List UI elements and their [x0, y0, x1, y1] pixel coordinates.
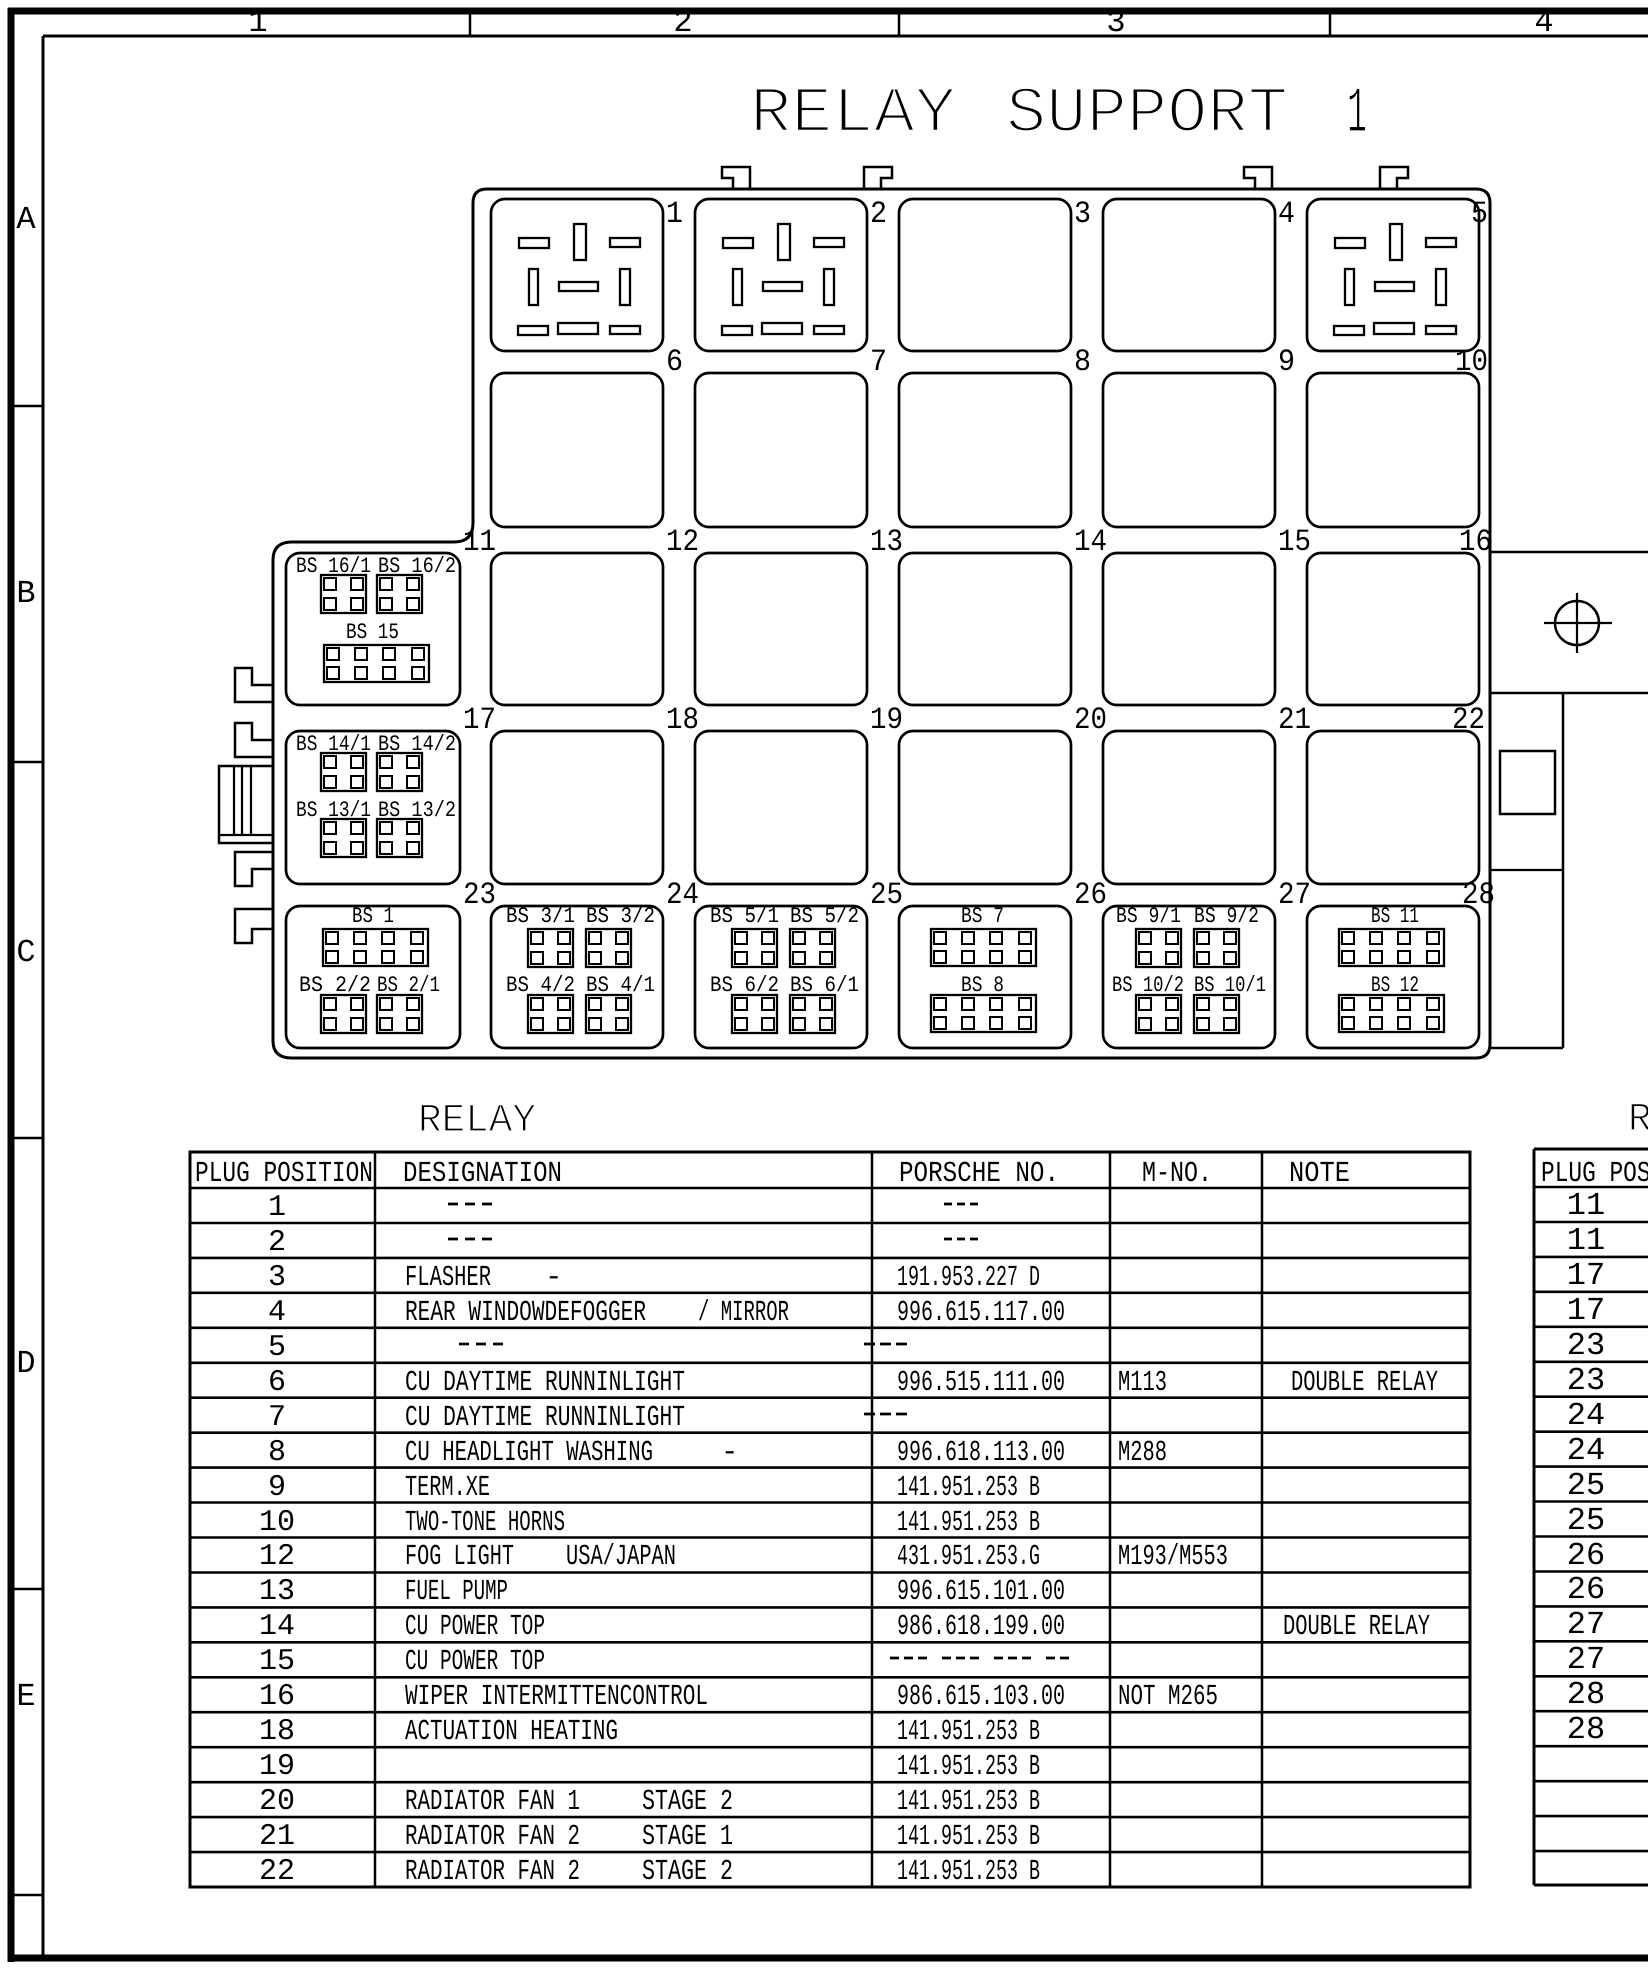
svg-text:6: 6: [268, 1366, 286, 1400]
svg-text:141.951.253 B: 141.951.253 B: [897, 1506, 1040, 1539]
svg-text:12: 12: [259, 1540, 295, 1574]
svg-text:20: 20: [1074, 703, 1107, 738]
svg-text:14: 14: [259, 1610, 295, 1644]
svg-text:26: 26: [1567, 1537, 1605, 1574]
svg-text:1: 1: [248, 4, 267, 41]
svg-text:14: 14: [1074, 525, 1107, 560]
svg-text:141.951.253 B: 141.951.253 B: [897, 1750, 1040, 1783]
svg-text:26: 26: [1074, 878, 1107, 913]
svg-text:BS 15: BS 15: [346, 620, 399, 645]
svg-text:DESIGNATION: DESIGNATION: [403, 1157, 562, 1190]
svg-text:RADIATOR FAN 2: RADIATOR FAN 2: [405, 1855, 580, 1888]
svg-text:24: 24: [666, 878, 699, 913]
svg-text:BS 9/2: BS 9/2: [1194, 904, 1259, 929]
svg-text:USA/JAPAN: USA/JAPAN: [566, 1540, 676, 1573]
svg-text:22: 22: [259, 1855, 295, 1889]
svg-text:REAR WINDOWDEFOGGER: REAR WINDOWDEFOGGER: [405, 1296, 646, 1329]
svg-text:24: 24: [1567, 1397, 1605, 1434]
svg-text:3: 3: [268, 1261, 286, 1295]
svg-text:15: 15: [259, 1645, 295, 1679]
svg-text:11: 11: [463, 525, 496, 560]
svg-text:996.615.117.00: 996.615.117.00: [897, 1296, 1065, 1329]
svg-text:431.951.253.G: 431.951.253.G: [897, 1540, 1040, 1573]
svg-text:B: B: [16, 575, 35, 612]
svg-text:SUPPORT: SUPPORT: [1006, 77, 1288, 151]
svg-text:2: 2: [268, 1226, 286, 1260]
svg-text:12: 12: [666, 525, 699, 560]
svg-text:TWO-TONE HORNS: TWO-TONE HORNS: [405, 1506, 565, 1539]
svg-text:RELAY: RELAY: [1628, 1098, 1648, 1143]
svg-text:BS 5/1: BS 5/1: [710, 904, 779, 929]
svg-text:13: 13: [870, 525, 903, 560]
svg-text:17: 17: [463, 703, 496, 738]
svg-text:4: 4: [1278, 197, 1295, 232]
svg-text:986.615.103.00: 986.615.103.00: [897, 1680, 1065, 1713]
svg-text:25: 25: [1567, 1467, 1605, 1504]
svg-text:28: 28: [1567, 1711, 1605, 1748]
svg-text:2: 2: [673, 4, 692, 41]
svg-text:23: 23: [1567, 1327, 1605, 1364]
svg-text:NOTE: NOTE: [1289, 1157, 1350, 1190]
svg-text:FOG LIGHT: FOG LIGHT: [405, 1540, 514, 1573]
svg-text:RADIATOR FAN 2: RADIATOR FAN 2: [405, 1820, 580, 1853]
svg-text:18: 18: [666, 703, 699, 738]
svg-text:13: 13: [259, 1575, 295, 1609]
svg-text:16: 16: [259, 1680, 295, 1714]
svg-text:26: 26: [1567, 1571, 1605, 1608]
svg-text:9: 9: [1278, 345, 1295, 380]
svg-text:CU DAYTIME RUNNINLIGHT: CU DAYTIME RUNNINLIGHT: [405, 1366, 685, 1399]
svg-text:RELAY: RELAY: [750, 77, 956, 151]
svg-text:BS 9/1: BS 9/1: [1116, 904, 1181, 929]
svg-text:18: 18: [259, 1715, 295, 1749]
svg-text:25: 25: [870, 878, 903, 913]
svg-text:DOUBLE RELAY: DOUBLE RELAY: [1291, 1366, 1438, 1399]
svg-text:M193/M553: M193/M553: [1118, 1540, 1228, 1573]
svg-text:21: 21: [259, 1820, 295, 1854]
svg-text:996.618.113.00: 996.618.113.00: [897, 1436, 1065, 1469]
svg-text:1: 1: [666, 197, 683, 232]
svg-text:TERM.XE: TERM.XE: [405, 1471, 490, 1504]
svg-text:996.615.101.00: 996.615.101.00: [897, 1575, 1065, 1608]
svg-text:STAGE 1: STAGE 1: [642, 1820, 733, 1853]
svg-text:FLASHER: FLASHER: [405, 1261, 491, 1294]
svg-text:19: 19: [870, 703, 903, 738]
svg-text:-: -: [721, 1436, 738, 1469]
svg-text:17: 17: [1567, 1257, 1605, 1294]
svg-text:9: 9: [268, 1471, 286, 1505]
svg-text:3: 3: [1106, 4, 1125, 41]
svg-text:28: 28: [1462, 878, 1495, 913]
svg-text:7: 7: [268, 1401, 286, 1435]
svg-text:141.951.253 B: 141.951.253 B: [897, 1855, 1040, 1888]
svg-text:RELAY: RELAY: [418, 1099, 536, 1144]
svg-text:CU POWER TOP: CU POWER TOP: [405, 1645, 545, 1678]
svg-text:1: 1: [1347, 77, 1367, 151]
svg-text:BS 5/2: BS 5/2: [790, 904, 859, 929]
svg-text:CU DAYTIME RUNNINLIGHT: CU DAYTIME RUNNINLIGHT: [405, 1401, 685, 1434]
svg-text:10: 10: [1455, 345, 1488, 380]
svg-text:BS 1: BS 1: [352, 904, 394, 929]
svg-text:191.953.227 D: 191.953.227 D: [897, 1261, 1040, 1294]
svg-text:24: 24: [1567, 1432, 1605, 1469]
svg-text:21: 21: [1278, 703, 1311, 738]
svg-text:M-NO.: M-NO.: [1142, 1157, 1212, 1190]
svg-text:CU POWER TOP: CU POWER TOP: [405, 1610, 545, 1643]
svg-text:11: 11: [1567, 1187, 1605, 1224]
svg-text:E: E: [16, 1678, 35, 1715]
svg-text:141.951.253 B: 141.951.253 B: [897, 1785, 1040, 1818]
svg-text:4: 4: [268, 1296, 286, 1330]
svg-text:3: 3: [1074, 197, 1091, 232]
svg-text:141.951.253 B: 141.951.253 B: [897, 1715, 1040, 1748]
svg-text:25: 25: [1567, 1502, 1605, 1539]
svg-text:5: 5: [1471, 197, 1488, 232]
svg-text:7: 7: [870, 345, 887, 380]
svg-text:8: 8: [268, 1436, 286, 1470]
svg-text:19: 19: [259, 1750, 295, 1784]
svg-text:27: 27: [1567, 1641, 1605, 1678]
svg-text:ACTUATION HEATING: ACTUATION HEATING: [405, 1715, 618, 1748]
svg-text:23: 23: [1567, 1362, 1605, 1399]
svg-text:BS 3/2: BS 3/2: [586, 904, 655, 929]
svg-text:FUEL PUMP: FUEL PUMP: [405, 1575, 508, 1608]
svg-text:-: -: [545, 1261, 562, 1294]
svg-text:141.951.253 B: 141.951.253 B: [897, 1471, 1040, 1504]
svg-text:986.618.199.00: 986.618.199.00: [897, 1610, 1065, 1643]
svg-text:2: 2: [870, 197, 887, 232]
svg-text:M113: M113: [1118, 1366, 1167, 1399]
svg-text:RADIATOR FAN 1: RADIATOR FAN 1: [405, 1785, 580, 1818]
svg-text:NOT M265: NOT M265: [1118, 1680, 1218, 1713]
svg-text:11: 11: [1567, 1222, 1605, 1259]
svg-text:BS 3/1: BS 3/1: [506, 904, 575, 929]
svg-text:STAGE 2: STAGE 2: [642, 1785, 733, 1818]
svg-text:1: 1: [268, 1191, 286, 1225]
svg-text:10: 10: [259, 1506, 295, 1540]
svg-text:141.951.253 B: 141.951.253 B: [897, 1820, 1040, 1853]
svg-text:22: 22: [1452, 703, 1485, 738]
svg-text:28: 28: [1567, 1676, 1605, 1713]
svg-text:20: 20: [259, 1785, 295, 1819]
svg-text:8: 8: [1074, 345, 1091, 380]
svg-text:16: 16: [1459, 525, 1492, 560]
svg-text:PORSCHE NO.: PORSCHE NO.: [899, 1157, 1059, 1190]
svg-text:15: 15: [1278, 525, 1311, 560]
svg-text:17: 17: [1567, 1292, 1605, 1329]
svg-text:4: 4: [1534, 4, 1553, 41]
svg-text:C: C: [16, 934, 35, 971]
svg-text:BS 11: BS 11: [1371, 904, 1419, 929]
svg-text:5: 5: [268, 1331, 286, 1365]
svg-text:WIPER INTERMITTENCONTROL: WIPER INTERMITTENCONTROL: [405, 1680, 708, 1713]
svg-text:/ MIRROR: / MIRROR: [698, 1296, 789, 1329]
svg-text:CU HEADLIGHT WASHING: CU HEADLIGHT WASHING: [405, 1436, 653, 1469]
svg-text:27: 27: [1278, 878, 1311, 913]
svg-text:27: 27: [1567, 1606, 1605, 1643]
svg-text:DOUBLE RELAY: DOUBLE RELAY: [1283, 1610, 1430, 1643]
svg-text:STAGE 2: STAGE 2: [642, 1855, 733, 1888]
svg-text:6: 6: [666, 345, 683, 380]
svg-text:PLUG POSITION: PLUG POSITION: [195, 1157, 373, 1190]
svg-text:996.515.111.00: 996.515.111.00: [897, 1366, 1065, 1399]
svg-text:M288: M288: [1118, 1436, 1167, 1469]
svg-text:BS 7: BS 7: [961, 904, 1004, 929]
svg-text:23: 23: [463, 878, 496, 913]
svg-text:D: D: [16, 1345, 35, 1382]
svg-text:PLUG POSITION: PLUG POSITION: [1541, 1157, 1648, 1190]
svg-text:A: A: [16, 201, 36, 238]
